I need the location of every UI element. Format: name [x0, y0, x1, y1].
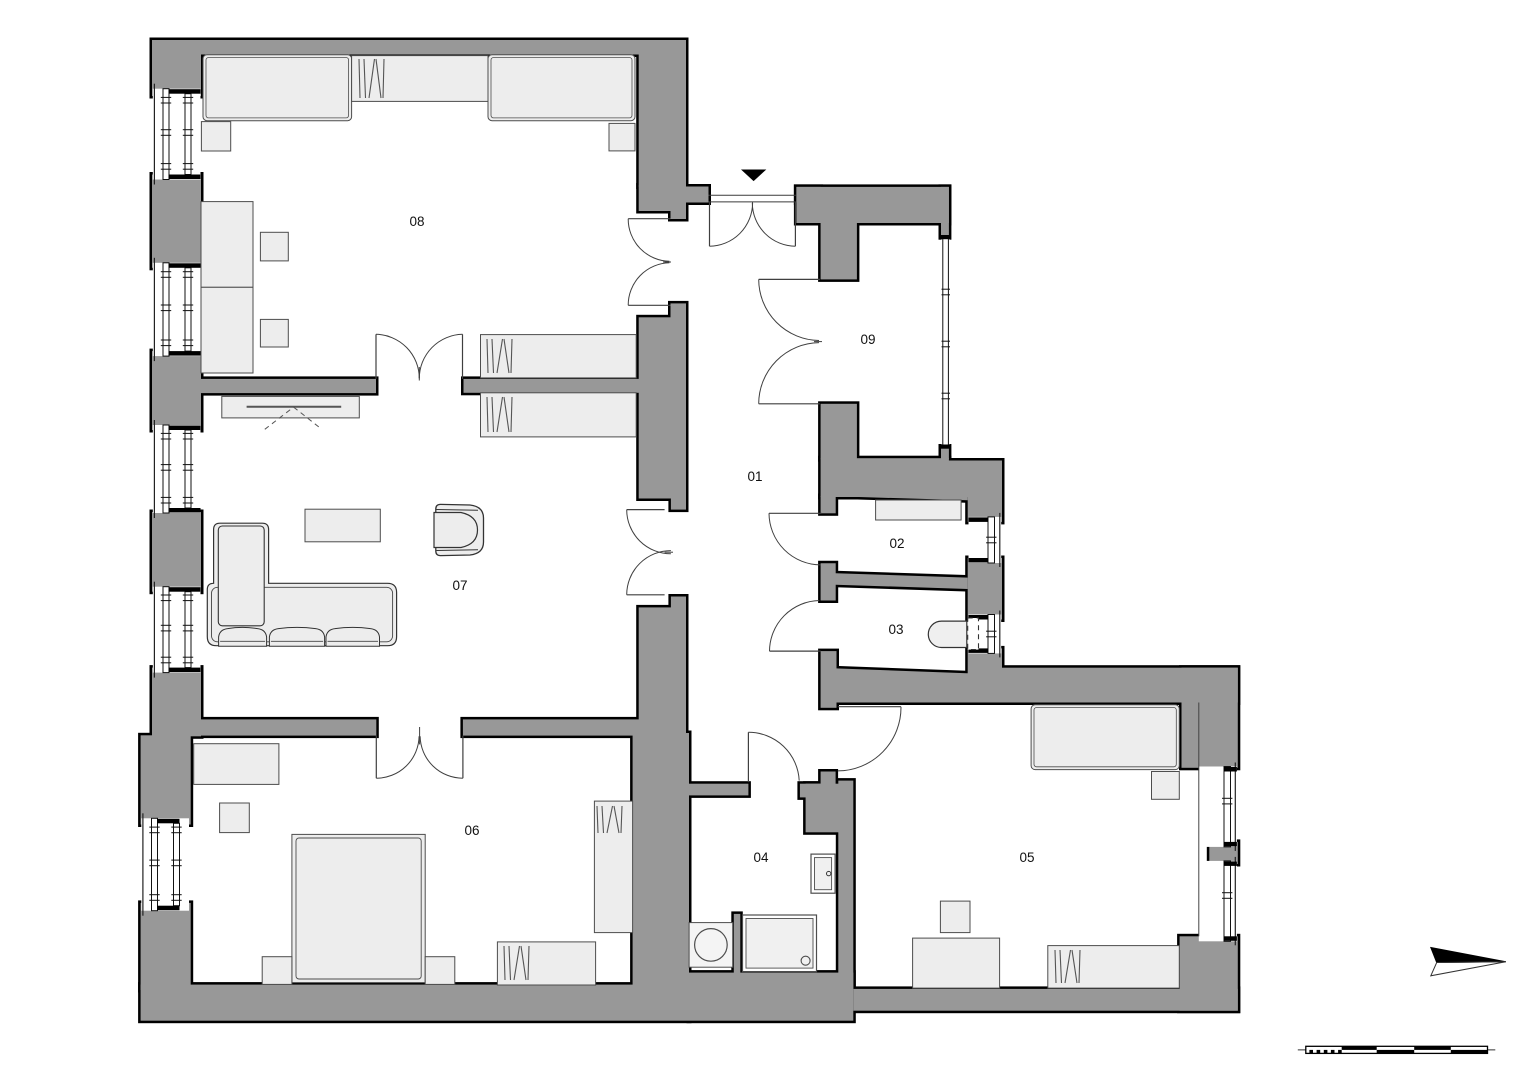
- svg-text:03: 03: [888, 622, 903, 637]
- svg-text:04: 04: [753, 850, 769, 865]
- svg-text:09: 09: [860, 332, 875, 347]
- svg-text:08: 08: [409, 214, 424, 229]
- svg-text:05: 05: [1019, 850, 1034, 865]
- svg-text:02: 02: [889, 536, 904, 551]
- svg-text:07: 07: [452, 578, 467, 593]
- svg-text:01: 01: [747, 469, 762, 484]
- svg-text:06: 06: [464, 823, 479, 838]
